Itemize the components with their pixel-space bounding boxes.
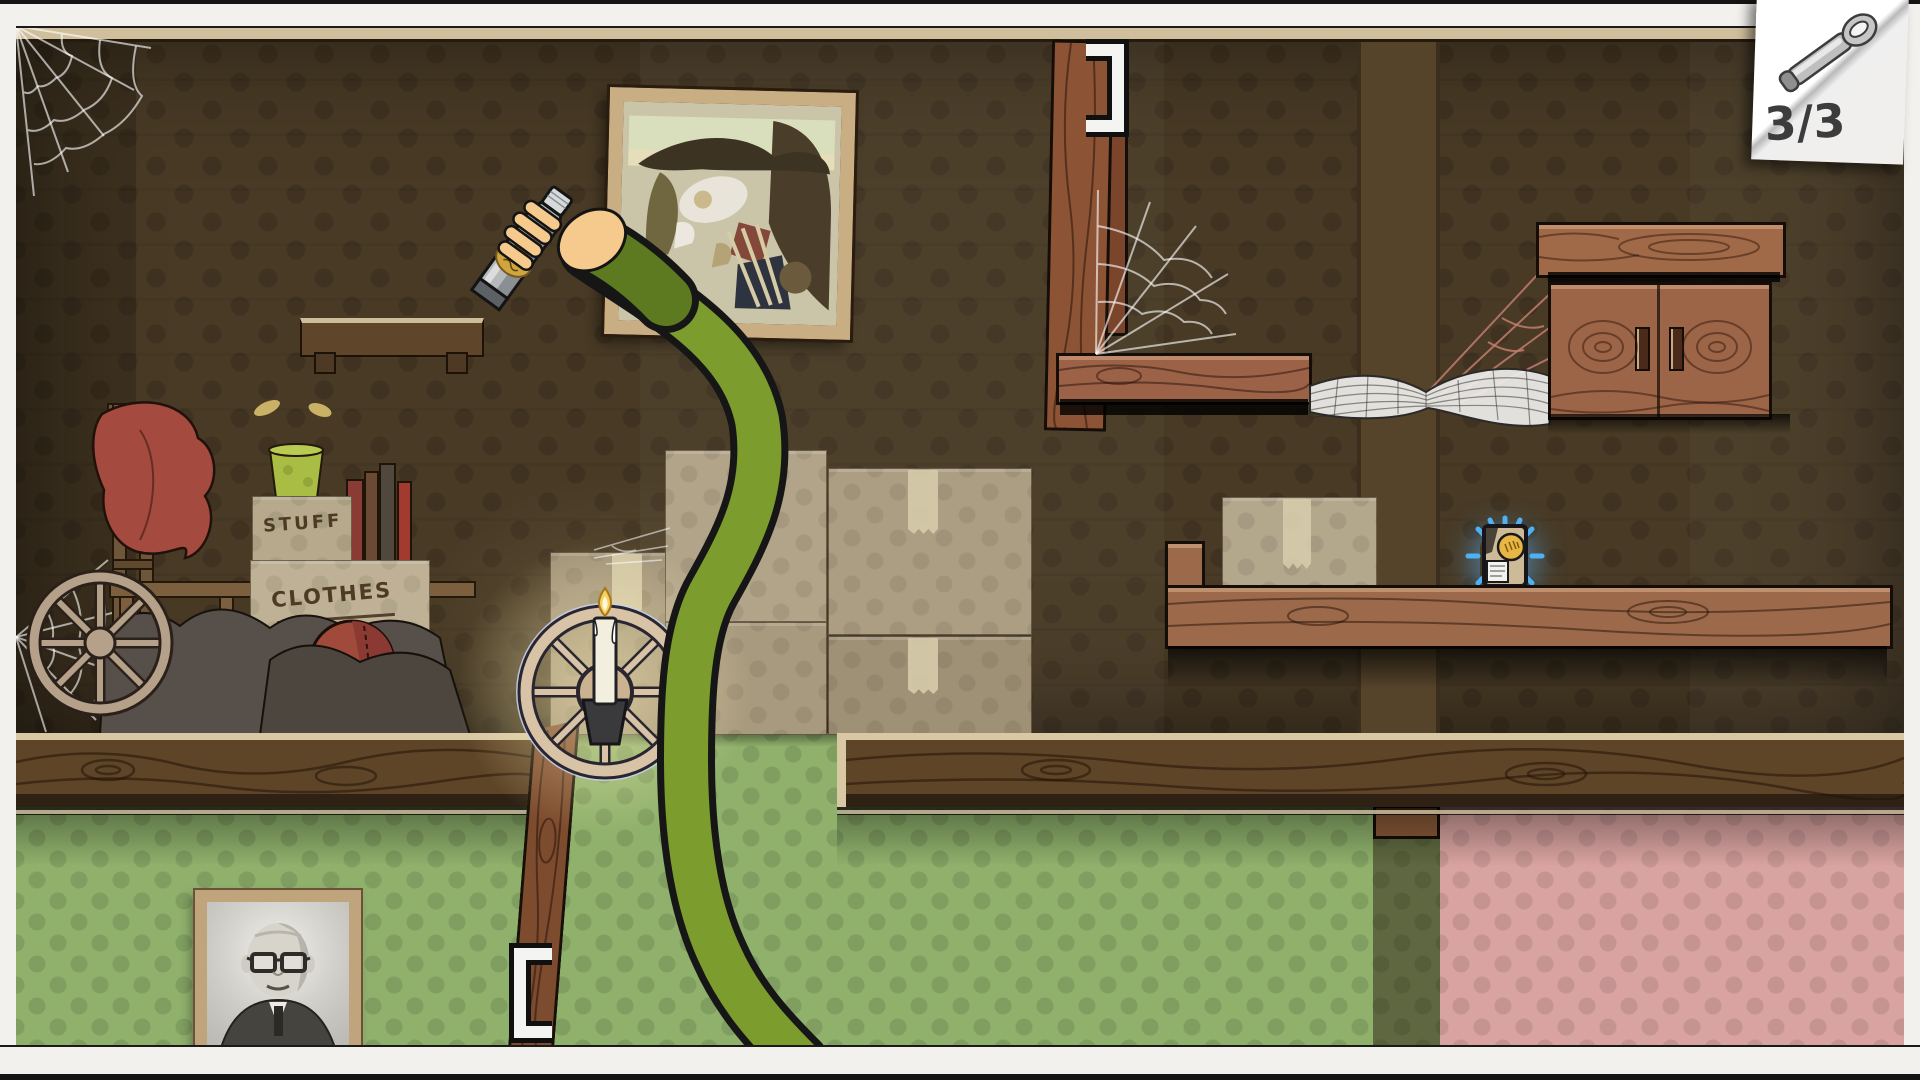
spider-web-small — [592, 520, 672, 566]
collectible-count-text: 3/3 — [1763, 93, 1847, 151]
bottle-opener-icon — [1755, 0, 1908, 103]
staple-bracket-plank[interactable] — [502, 942, 558, 1044]
portrait-photo — [195, 890, 361, 1060]
spider-web-corner — [1088, 182, 1240, 360]
cabinet-body[interactable] — [1548, 282, 1772, 420]
room-divider-shadow — [1373, 837, 1440, 1047]
candle-wheel[interactable] — [455, 545, 755, 835]
ceiling-trim — [16, 26, 1904, 42]
frame-right — [1904, 0, 1920, 1080]
frame-edge-top — [0, 0, 1920, 4]
box-tape — [908, 638, 938, 694]
staple-bracket-beam[interactable] — [1080, 38, 1136, 138]
collectible-counter: 3/3 — [1751, 0, 1909, 165]
spider-web-top-left — [16, 26, 156, 201]
framed-abstract-painting — [604, 87, 856, 340]
box-tape — [730, 452, 760, 544]
web-ledge — [1056, 353, 1312, 405]
ledge-shadow — [1060, 399, 1308, 415]
box-tape — [908, 470, 938, 534]
portrait-canvas — [207, 902, 349, 1048]
box-tape — [1283, 499, 1311, 569]
junk-cluster-front — [20, 330, 490, 735]
cabinet-slab-shadow — [1548, 272, 1780, 282]
frame-top — [0, 4, 1920, 26]
floor-grain — [846, 740, 1904, 800]
long-shelf-shadow — [1168, 646, 1887, 688]
frame-bottom — [0, 1047, 1920, 1074]
game-viewport: STUFF CLOTHES — [0, 0, 1920, 1080]
ledge-grain — [1059, 356, 1309, 396]
cabinet-top-slab — [1536, 222, 1786, 278]
cabinet-shadow — [1548, 414, 1790, 434]
spider-web-funnel — [1288, 262, 1578, 440]
cabinet-grain — [1551, 285, 1769, 417]
wagon-wheel-left — [34, 577, 166, 709]
long-shelf — [1165, 585, 1893, 649]
shelf-grain — [1168, 588, 1890, 640]
cabinet-grain — [1539, 225, 1783, 269]
painting-canvas — [618, 101, 841, 325]
frame-edge-bottom — [0, 1074, 1920, 1080]
wall-shadow-under-floor — [837, 814, 1904, 866]
attic-floor-right — [837, 733, 1904, 807]
frame-left — [0, 0, 16, 1080]
